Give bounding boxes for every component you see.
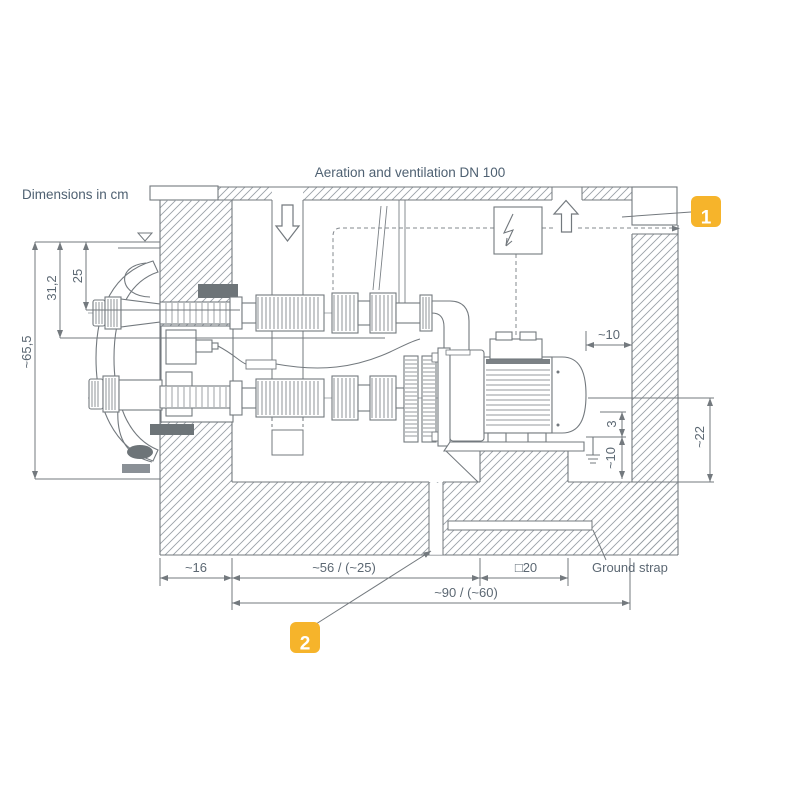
upper-pipe-run (230, 293, 469, 352)
dim-pedestal-height: ~10 (603, 447, 618, 469)
pump-flange (438, 348, 450, 446)
water-level-icon (35, 233, 160, 248)
motor (484, 332, 586, 442)
callout-2: 2 (290, 622, 320, 655)
edge-beam (150, 186, 218, 200)
ground-strap-label: Ground strap (592, 560, 668, 575)
dimension-lines-bottom (160, 558, 630, 610)
airflow-down-arrow-icon (276, 205, 299, 241)
installation-diagram: Aeration and ventilation DN 100 Dimensio… (0, 0, 800, 800)
diagram-canvas: Aeration and ventilation DN 100 Dimensio… (0, 0, 800, 800)
floor-drain-gap (430, 483, 443, 555)
dim-inlet-depth: 25 (70, 269, 85, 283)
fan-cover (552, 357, 586, 433)
unit-cowl (96, 261, 158, 461)
ground-icon (586, 437, 600, 463)
dim-base-height: 3 (604, 420, 619, 427)
dim-chamber-width: ~90 / (~60) (434, 585, 498, 600)
dim-hose-length: ~56 / (~25) (312, 560, 376, 575)
ground-strap-bar (448, 521, 592, 530)
dim-axis-height: ~22 (692, 426, 707, 448)
callout-1: 1 (691, 196, 721, 229)
pneumatic-switch (196, 340, 212, 352)
dim-inlet-depth-outer: 31,2 (44, 275, 59, 300)
discharge-elbow (432, 301, 469, 352)
upper-nozzle (93, 297, 232, 329)
access-cover (632, 187, 677, 225)
airflow-up-arrow-icon (554, 201, 578, 233)
base-plate (444, 442, 584, 451)
pump-union-disc (404, 356, 418, 442)
pump-pedestal (480, 450, 568, 482)
diagram-title: Aeration and ventilation DN 100 (315, 165, 506, 180)
dim-wall-thickness: ~16 (185, 560, 207, 575)
electrical-box (494, 207, 542, 254)
dim-pool-depth: ~65,5 (19, 336, 34, 369)
dashed-line-arrowhead (672, 226, 680, 232)
callout-1-number: 1 (701, 208, 712, 229)
pneumatic-cable (218, 339, 420, 369)
pump-volute (450, 350, 484, 441)
chamber-floor (160, 450, 678, 555)
dim-motor-wall-clearance: ~10 (598, 327, 620, 342)
terminal-box (490, 339, 542, 359)
dim-pedestal-width: □20 (515, 560, 537, 575)
units-note: Dimensions in cm (22, 187, 129, 202)
callout-2-number: 2 (300, 634, 311, 655)
